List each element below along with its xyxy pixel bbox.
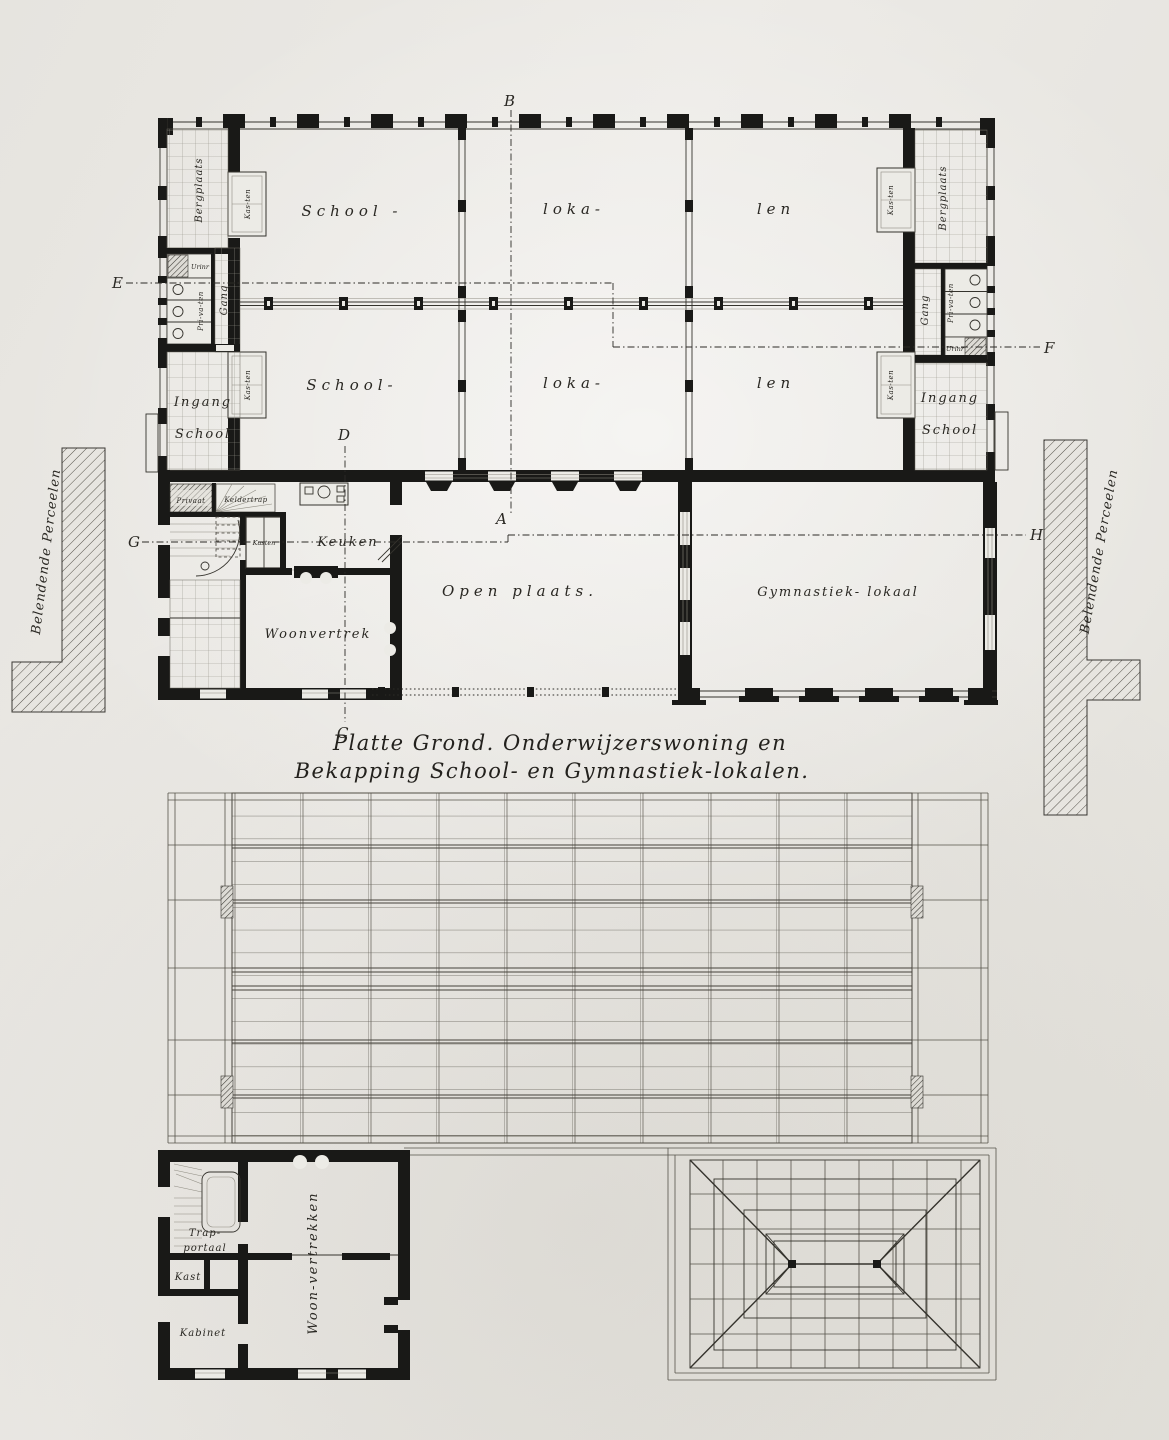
ingang-right-label2: School (922, 423, 978, 438)
section-e: E (111, 274, 123, 292)
room-school-bottom: School- (306, 376, 397, 394)
plan-svg: Belendende Perceelen Belendende Perceele… (0, 0, 1169, 1440)
glazed-partition (240, 297, 903, 310)
gym-label: Gymnastiek- lokaal (757, 585, 919, 600)
drawing-sheet: Belendende Perceelen Belendende Perceele… (0, 0, 1169, 1440)
open-plaats-label: Open plaats. (442, 582, 598, 600)
keuken-label: Keuken (316, 535, 378, 550)
keuken: Keuken (300, 483, 402, 562)
room-loka-top: loka- (543, 200, 605, 218)
kasten-top-right-label: Kas-ten (887, 185, 895, 216)
gym: Gymnastiek- lokaal (672, 482, 998, 705)
house-upper-floor: Trap- portaal Kast Kabinet Woon-vertrekk… (158, 1150, 410, 1380)
kast-label: Kast (174, 1272, 202, 1283)
right-wing-rooms: Bergplaats Gang Pri-va-ten Urinr Ingang … (915, 130, 987, 470)
room-school-top: School - (301, 202, 402, 220)
school-north-wall (158, 114, 995, 135)
ingang-right-label1: Ingang (920, 391, 979, 406)
woonvertrekken-label: Woon-vertrekken (306, 1191, 321, 1334)
title-line2: Bekapping School- en Gymnastiek-lokalen. (294, 759, 810, 783)
section-a: A (494, 510, 507, 528)
gang-left-label: Gang (219, 285, 230, 316)
urinoir-left-label: Urinr (191, 263, 210, 271)
title-line1: Platte Grond. Onderwijzerswoning en (332, 731, 787, 755)
section-g: G (128, 533, 140, 551)
privaten-right-label: Pri-va-ten (947, 283, 955, 324)
title-block: Platte Grond. Onderwijzerswoning en Beka… (294, 731, 810, 783)
parcel-right: Belendende Perceelen (1044, 440, 1140, 815)
north-wall-piers (196, 114, 942, 128)
kasten-bottom-left-label: Kas-ten (244, 370, 252, 401)
open-plaats: Open plaats. (372, 582, 676, 697)
gym-hip-roof (690, 1160, 980, 1368)
kasten-cupboard-top-left: Kas-ten (228, 172, 266, 236)
section-h: H (1029, 526, 1044, 544)
urinoir-right-label: Urinr (946, 345, 965, 353)
floor-plan: Belendende Perceelen Belendende Perceele… (12, 92, 1140, 815)
classroom-south-wall (158, 470, 995, 491)
kasten-cupboard-bottom-right: Kas-ten (877, 352, 915, 418)
west-outer-wall (146, 118, 167, 472)
section-b: B (503, 92, 515, 110)
kasten-cupboard-top-right: Kas-ten (877, 168, 915, 232)
gang-right-label: Gang (920, 295, 931, 326)
east-outer-wall (986, 118, 1008, 470)
woonvertrek-label: Woonvertrek (265, 627, 372, 642)
kasten-top-left-label: Kas-ten (244, 189, 252, 220)
room-loka-bottom: loka- (543, 374, 605, 392)
ingang-left-label1: Ingang (173, 395, 232, 410)
section-d: D (337, 426, 350, 444)
privaat-label: Privaat (176, 497, 206, 505)
classroom-partitions (240, 128, 903, 470)
teacher-house: Privaat Keldertrap Kasten (158, 470, 402, 700)
house-stairs (170, 517, 240, 576)
ingang-left-label2: School (175, 427, 231, 442)
trap-label-1: Trap- (189, 1228, 221, 1239)
privaten-left-label: Pri-va-ten (197, 291, 205, 332)
bergplaats-left-label: Bergplaats (194, 157, 205, 223)
roof-plan: Trap- portaal Kast Kabinet Woon-vertrekk… (158, 793, 996, 1380)
parcel-left-label: Belendende Perceelen (29, 468, 64, 637)
room-len-bottom: len (757, 374, 795, 392)
section-f: F (1043, 339, 1055, 357)
trap-label-2: portaal (183, 1243, 226, 1254)
glazed-posts (264, 297, 873, 310)
school-roof (168, 793, 988, 1143)
kasten-bottom-right-label: Kas-ten (887, 370, 895, 401)
right-wing-wall: Kas-ten Kas-ten (877, 128, 915, 470)
bergplaats-right-label: Bergplaats (938, 165, 949, 231)
keldertrap-label: Keldertrap (223, 496, 267, 504)
kabinet-label: Kabinet (179, 1328, 226, 1339)
room-len-top: len (757, 200, 795, 218)
parcel-left: Belendende Perceelen (12, 448, 105, 712)
house-kasten-label: Kasten (252, 539, 276, 547)
